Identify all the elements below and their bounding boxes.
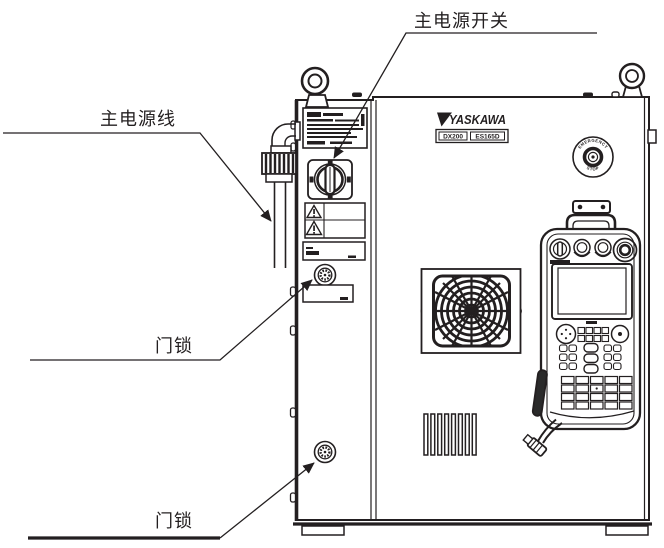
- callout-main-power-cable: 主电源线: [100, 109, 176, 129]
- teach-pendant: [522, 201, 640, 457]
- main-power-switch-drawing: [308, 160, 352, 199]
- hinge-right: [648, 130, 656, 143]
- model-plate: DX200 ES165D: [436, 130, 508, 143]
- door-lock-upper-plate: [303, 285, 353, 302]
- hinge-left-2: [291, 326, 296, 335]
- callout-door-lock-upper: 门锁: [155, 336, 193, 356]
- hinge-left-3: [291, 408, 296, 417]
- fan-grill-icon: [432, 272, 511, 350]
- leader-door-lock-lower: [220, 463, 314, 538]
- door-lock-lower-drawing: [315, 442, 336, 463]
- callout-main-power-switch: 主电源开关: [414, 11, 509, 31]
- vent-slats: [424, 414, 476, 455]
- yaskawa-logo: YASKAWA: [437, 112, 506, 127]
- door-lock-upper-drawing: [315, 265, 336, 286]
- callout-door-lock-lower: 门锁: [155, 511, 193, 531]
- cooling-fan: [421, 269, 521, 353]
- rating-nameplate: [303, 108, 367, 148]
- diagram-drawing: YASKAWA DX200 ES165D EMERGENCY STOP: [0, 0, 664, 548]
- spec-plate: [303, 242, 365, 260]
- model-name-text: ES165D: [475, 134, 500, 141]
- model-series-text: DX200: [443, 134, 463, 141]
- foot-left: [302, 526, 344, 535]
- warning-labels: [305, 203, 365, 238]
- logo-text: YASKAWA: [449, 112, 506, 127]
- lifting-eyebolt-left: [302, 68, 328, 107]
- hinge-left-4: [291, 493, 296, 502]
- top-latch-left: [352, 93, 362, 98]
- foot-right: [606, 526, 648, 535]
- leader-main-power-cable: [3, 133, 271, 221]
- top-latch-right: [583, 93, 593, 98]
- emergency-stop-button: EMERGENCY STOP: [573, 137, 613, 177]
- controller-front-view-diagram: YASKAWA DX200 ES165D EMERGENCY STOP: [0, 0, 664, 548]
- lifting-eyebolt-right: [612, 64, 644, 97]
